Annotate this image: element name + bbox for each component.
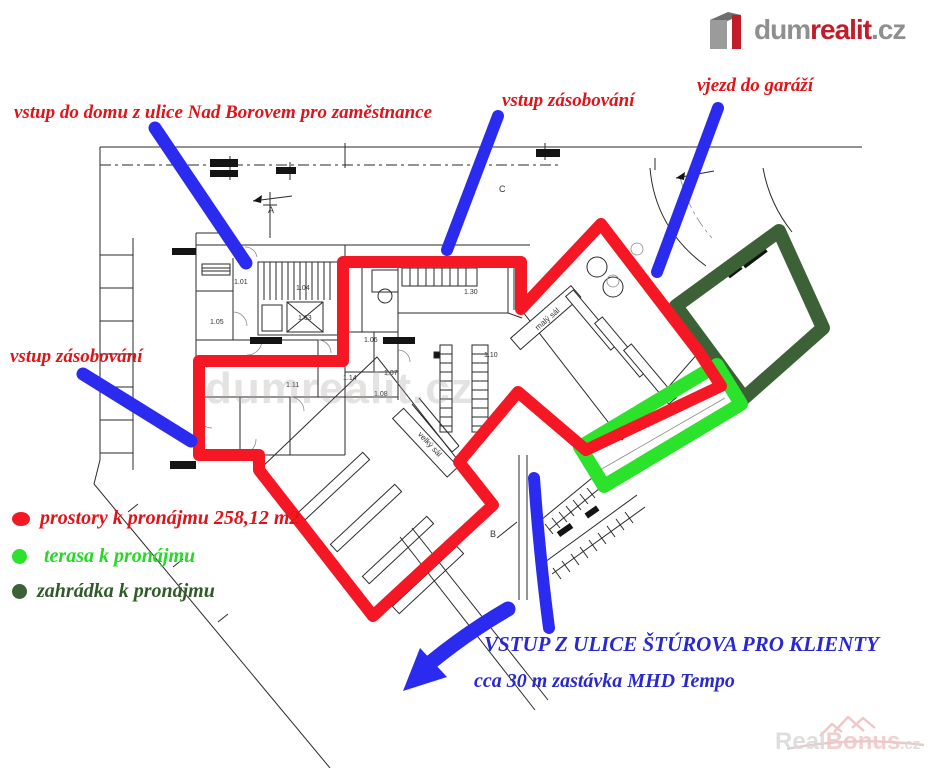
room-label: 1.63	[298, 315, 312, 322]
legend-dot-terrace	[12, 549, 27, 564]
realbonus-cz: .cz	[900, 736, 920, 753]
site-plan-image: 1.011.041.631.051.061.111.071.081.141.10…	[0, 0, 931, 768]
room-label: 1.04	[296, 285, 310, 292]
dumrealit-logo-icon	[708, 9, 746, 51]
dumrealit-logo-text: dumrealit.cz	[754, 14, 905, 46]
room-label: 1.01	[234, 279, 248, 286]
legend-label-garden: zahrádka k pronájmu	[37, 580, 215, 603]
legend-label-rental: prostory k pronájmu 258,12 m2	[40, 507, 299, 530]
dumrealit-logo: dumrealit.cz	[708, 9, 905, 51]
label-bus-stop: cca 30 m zastávka MHD Tempo	[474, 670, 735, 693]
legend-label-terrace: terasa k pronájmu	[44, 545, 195, 568]
legend-dot-rental	[12, 512, 30, 526]
label-supply-left: vstup zásobování	[10, 346, 143, 368]
door-arcs	[196, 247, 410, 455]
realbonus-real: Real	[775, 728, 826, 755]
logo-word-realit: realit	[810, 14, 871, 45]
arrow-employee-entrance	[155, 128, 246, 263]
room-label: 1.10	[484, 352, 498, 359]
label-garage-entry: vjezd do garáží	[697, 75, 813, 97]
arrow-garage-entry	[657, 108, 718, 272]
legend-dot-garden	[12, 584, 27, 599]
room-label: 1.06	[364, 337, 378, 344]
label-client-entrance: VSTUP Z ULICE ŠTÚROVA PRO KLIENTY	[484, 632, 879, 657]
label-employee-entrance: vstup do domu z ulice Nad Borovem pro za…	[14, 102, 432, 124]
logo-word-dum: dum	[754, 14, 810, 45]
realbonus-bonus: Bonus	[826, 728, 901, 755]
room-label: A	[268, 205, 274, 215]
logo-tld: .cz	[871, 14, 905, 45]
center-watermark: dumrealit.cz	[205, 364, 474, 414]
label-supply-top: vstup zásobování	[502, 90, 635, 112]
realbonus-watermark: RealBonus.cz	[775, 728, 920, 756]
room-label: C	[499, 184, 506, 194]
arrow-client-entrance-pointer	[534, 478, 549, 628]
room-label: 1.05	[210, 319, 224, 326]
arrow-supply-left	[83, 374, 191, 441]
legend-item-rental: prostory k pronájmu 258,12 m2	[12, 507, 299, 530]
legend-item-garden: zahrádka k pronájmu	[12, 580, 215, 603]
room-label: 1.30	[464, 289, 478, 296]
room-label: B	[490, 529, 496, 539]
legend-item-terrace: terasa k pronájmu	[12, 545, 195, 568]
arrow-supply-top	[447, 116, 498, 250]
